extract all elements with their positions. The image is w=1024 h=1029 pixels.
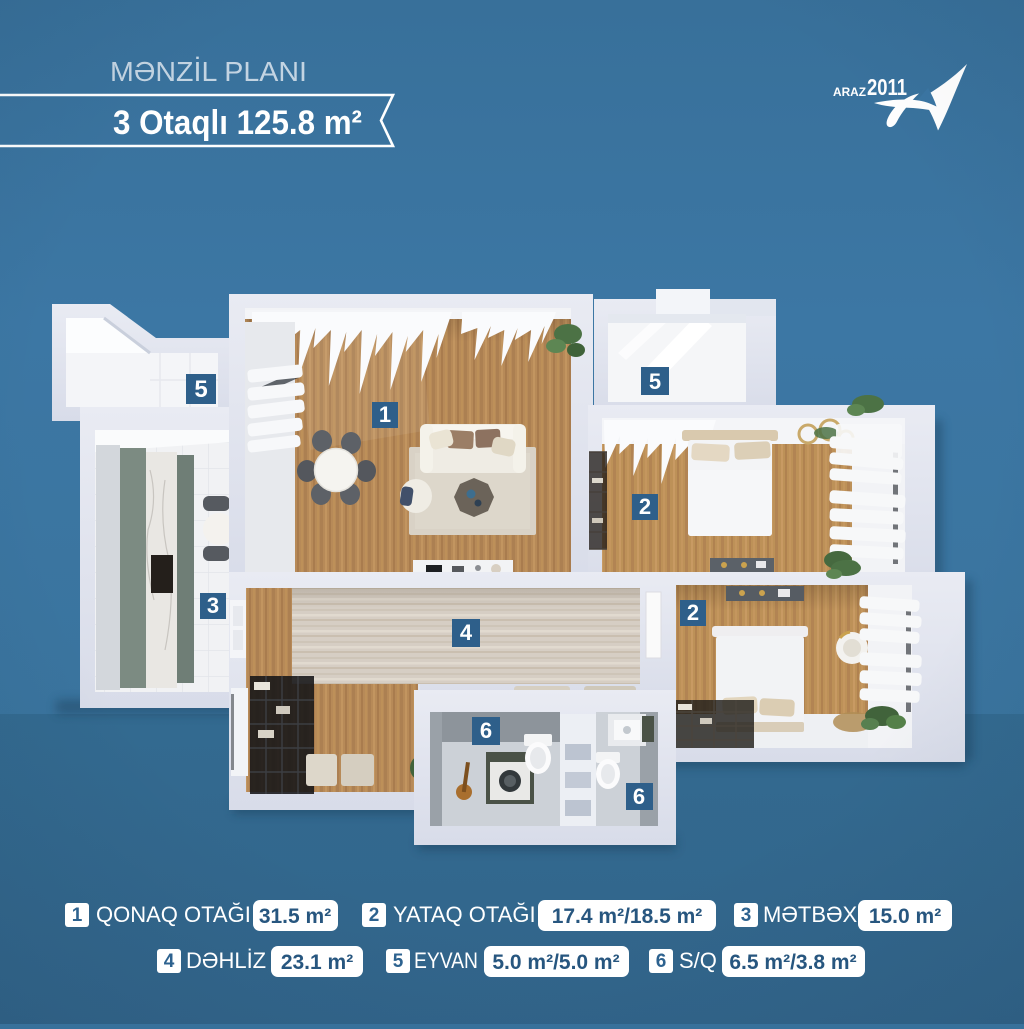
svg-text:5: 5	[393, 951, 404, 972]
svg-text:DƏHLİZ: DƏHLİZ	[186, 948, 266, 973]
svg-text:EYVAN: EYVAN	[414, 948, 478, 973]
svg-text:MƏTBƏX: MƏTBƏX	[763, 902, 858, 927]
svg-text:YATAQ OTAĞI: YATAQ OTAĞI	[393, 902, 536, 927]
svg-text:QONAQ OTAĞI: QONAQ OTAĞI	[96, 902, 251, 927]
svg-text:6.5 m²/3.8 m²: 6.5 m²/3.8 m²	[729, 951, 856, 974]
svg-text:5.0 m²/5.0 m²: 5.0 m²/5.0 m²	[492, 951, 619, 974]
svg-text:2: 2	[369, 905, 380, 926]
svg-text:3: 3	[741, 905, 752, 926]
svg-text:23.1 m²: 23.1 m²	[281, 951, 353, 974]
svg-text:4: 4	[164, 951, 175, 972]
svg-text:S/Q: S/Q	[679, 948, 717, 973]
svg-text:31.5 m²: 31.5 m²	[259, 905, 331, 928]
svg-text:6: 6	[656, 951, 667, 972]
svg-text:17.4 m²/18.5 m²: 17.4 m²/18.5 m²	[552, 905, 703, 928]
svg-text:15.0 m²: 15.0 m²	[869, 905, 941, 928]
svg-text:1: 1	[72, 905, 83, 926]
